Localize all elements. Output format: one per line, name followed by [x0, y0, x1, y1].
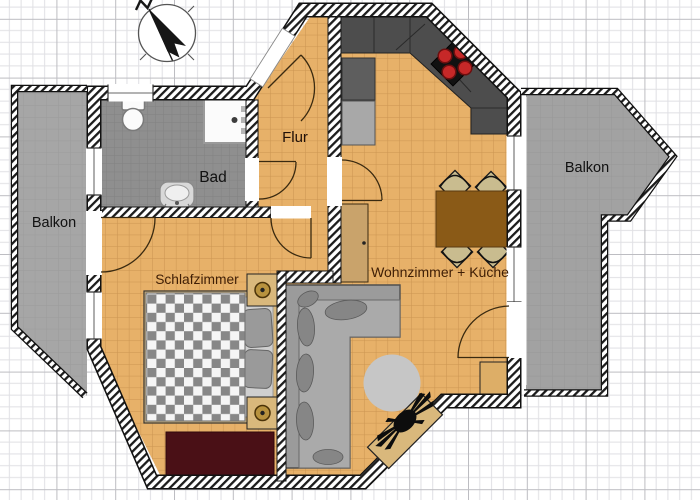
svg-text:Balkon: Balkon: [32, 215, 76, 231]
svg-text:Bad: Bad: [199, 169, 227, 186]
svg-text:Wohnzimmer + Küche: Wohnzimmer + Küche: [371, 264, 509, 280]
svg-text:Balkon: Balkon: [565, 160, 609, 176]
svg-text:Flur: Flur: [282, 129, 308, 146]
svg-text:Schlafzimmer: Schlafzimmer: [155, 272, 239, 287]
